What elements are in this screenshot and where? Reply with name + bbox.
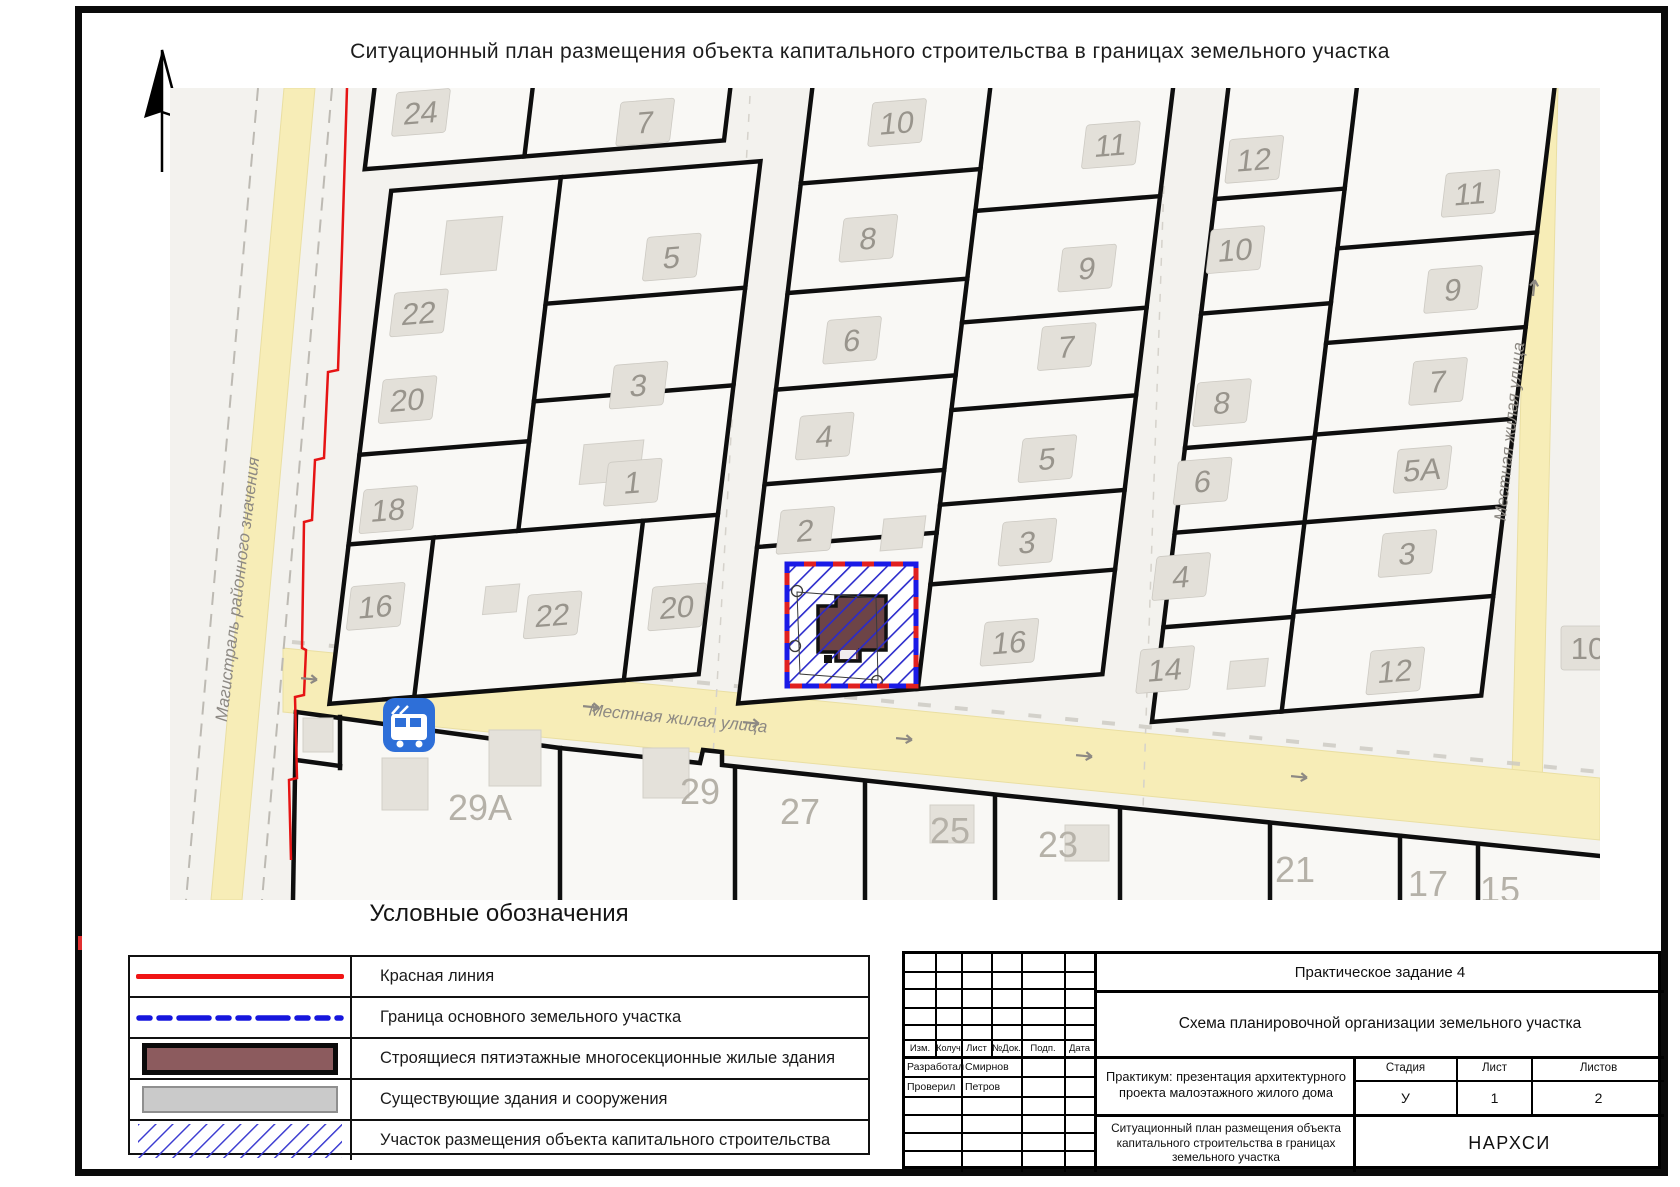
col-kol: Колуч: [936, 1040, 961, 1056]
legend-row: Красная линия: [130, 957, 868, 998]
selected-parcel: [787, 564, 916, 687]
plot-number-plate: 9: [1424, 265, 1483, 313]
svg-text:14: 14: [1146, 651, 1185, 689]
legend-title: Условные обозначения: [128, 900, 870, 928]
bus-stop-icon: [383, 698, 435, 752]
plot-number-plate: 1: [603, 458, 662, 506]
col-list: Лист: [962, 1040, 991, 1056]
sheets-label: Листов: [1533, 1056, 1664, 1080]
developed-name: Смирнов: [965, 1057, 1019, 1076]
legend-row: Участок размещения объекта капитального …: [130, 1121, 868, 1160]
document-title: Схема планировочной организации земельно…: [1096, 992, 1664, 1056]
legend-row: Граница основного земельного участка: [130, 998, 868, 1039]
plot-number-label: 25: [930, 810, 970, 851]
existing-building-symbol: [142, 1086, 338, 1113]
svg-text:20: 20: [388, 381, 427, 419]
plot-number-plate: 3: [998, 518, 1057, 566]
plot-number-plate: 5А: [1393, 445, 1452, 493]
plot-number-plate: 22: [523, 591, 582, 639]
sheets-value: 2: [1533, 1082, 1664, 1114]
plot-number-plate: 11: [1441, 169, 1500, 217]
plot-number-plate: 6: [1173, 457, 1232, 505]
svg-text:12: 12: [1376, 653, 1415, 691]
legend-row: Строящиеся пятиэтажные многосекционные ж…: [130, 1039, 868, 1080]
plot-number-plate: 16: [346, 582, 405, 630]
plot-number-plate: 2: [776, 506, 835, 554]
plot-number-plate: 10: [1561, 626, 1615, 670]
plot-number-plate: 4: [1152, 552, 1211, 600]
plot-number-plate: 24: [391, 88, 450, 136]
svg-text:5А: 5А: [1401, 451, 1443, 489]
sheet-label: Лист: [1458, 1056, 1531, 1080]
plot-number-plate: 8: [839, 214, 898, 262]
plot-number-plate: 7: [1037, 323, 1096, 371]
developed-label: Разработал: [907, 1057, 961, 1076]
legend-label: Граница основного земельного участка: [352, 998, 868, 1037]
col-ndok: №Док.: [992, 1040, 1021, 1056]
project-name: Практическое задание 4: [1096, 954, 1664, 990]
plot-number-label: 27: [780, 791, 820, 832]
blue-dash-line-symbol: [135, 1012, 345, 1024]
legend-row: Существующие здания и сооружения: [130, 1080, 868, 1121]
plot-number-plate: 7: [1408, 357, 1467, 405]
col-podp: Подп.: [1022, 1040, 1064, 1056]
organization-name: НАРХСИ: [1355, 1116, 1664, 1170]
course-title: Практикум: презентация архитектурного пр…: [1101, 1058, 1351, 1112]
legend-label: Существующие здания и сооружения: [352, 1080, 868, 1119]
svg-text:10: 10: [1216, 231, 1255, 269]
col-data: Дата: [1065, 1040, 1094, 1056]
col-izm: Изм.: [905, 1040, 935, 1056]
plot-number-plate: 20: [378, 376, 437, 424]
checked-label: Проверил: [907, 1077, 961, 1096]
svg-text:22: 22: [533, 597, 572, 635]
plot-number-plate: 20: [648, 583, 707, 631]
plot-number-label: 15: [1480, 869, 1520, 910]
svg-text:11: 11: [1452, 175, 1488, 212]
legend-label: Строящиеся пятиэтажные многосекционные ж…: [352, 1039, 868, 1078]
svg-text:16: 16: [990, 624, 1029, 662]
drawing-sheet: Ситуационный план размещения объекта кап…: [0, 0, 1680, 1187]
plot-number-plate: 3: [609, 361, 668, 409]
plot-number-plate: 5: [1018, 435, 1077, 483]
plot-number-plate: 18: [359, 486, 418, 534]
svg-text:11: 11: [1093, 127, 1129, 164]
svg-text:18: 18: [369, 491, 408, 529]
stage-label: Стадия: [1355, 1056, 1456, 1080]
plot-number-plate: 16: [980, 618, 1039, 666]
plot-number-label: 21: [1275, 849, 1315, 890]
plot-number-label: 29А: [448, 787, 512, 828]
svg-text:10: 10: [1571, 631, 1605, 666]
plot-number-label: 23: [1038, 824, 1078, 865]
red-line-symbol: [136, 974, 344, 979]
plot-number-plate: 7: [616, 98, 675, 146]
svg-text:22: 22: [400, 295, 439, 333]
stage-value: У: [1355, 1082, 1456, 1114]
plot-number-plate: 4: [795, 412, 854, 460]
plot-number-plate: 5: [642, 233, 701, 281]
plot-number-label: 17: [1408, 863, 1448, 904]
checked-name: Петров: [965, 1077, 1019, 1096]
plot-number-plate: 12: [1366, 647, 1425, 695]
svg-text:16: 16: [356, 588, 395, 626]
plot-number-plate: 14: [1136, 645, 1195, 693]
legend-label: Красная линия: [352, 957, 868, 996]
plot-number-label: 29: [680, 771, 720, 812]
svg-text:12: 12: [1235, 141, 1274, 179]
plot-number-plate: 8: [1192, 379, 1251, 427]
svg-text:24: 24: [402, 94, 441, 132]
plot-number-plate: 12: [1225, 135, 1284, 183]
plot-number-plate: 9: [1058, 244, 1117, 292]
hatch-area-symbol: [138, 1124, 342, 1158]
construction-hatch: [787, 564, 916, 686]
sheet-title: Ситуационный план размещения объекта кап…: [1101, 1116, 1351, 1170]
new-building-symbol: [142, 1043, 338, 1075]
legend-table: Красная линия Граница основного земельно…: [128, 955, 870, 1155]
plot-number-plate: 11: [1081, 121, 1140, 169]
plot-number-plate: 22: [389, 289, 448, 337]
plot-number-plate: 10: [868, 98, 927, 146]
svg-text:10: 10: [878, 104, 917, 142]
title-block: Изм. Колуч Лист №Док. Подп. Дата Разрабо…: [902, 951, 1661, 1169]
plot-number-plate: 3: [1378, 529, 1437, 577]
plot-number-plate: 6: [823, 316, 882, 364]
parcel-block-left: 22 20 18 5 3 1 16 22 20: [329, 161, 760, 704]
plot-number-plate: 10: [1206, 226, 1265, 274]
sheet-value: 1: [1458, 1082, 1531, 1114]
legend-label: Участок размещения объекта капитального …: [352, 1121, 868, 1160]
svg-text:20: 20: [658, 589, 697, 627]
